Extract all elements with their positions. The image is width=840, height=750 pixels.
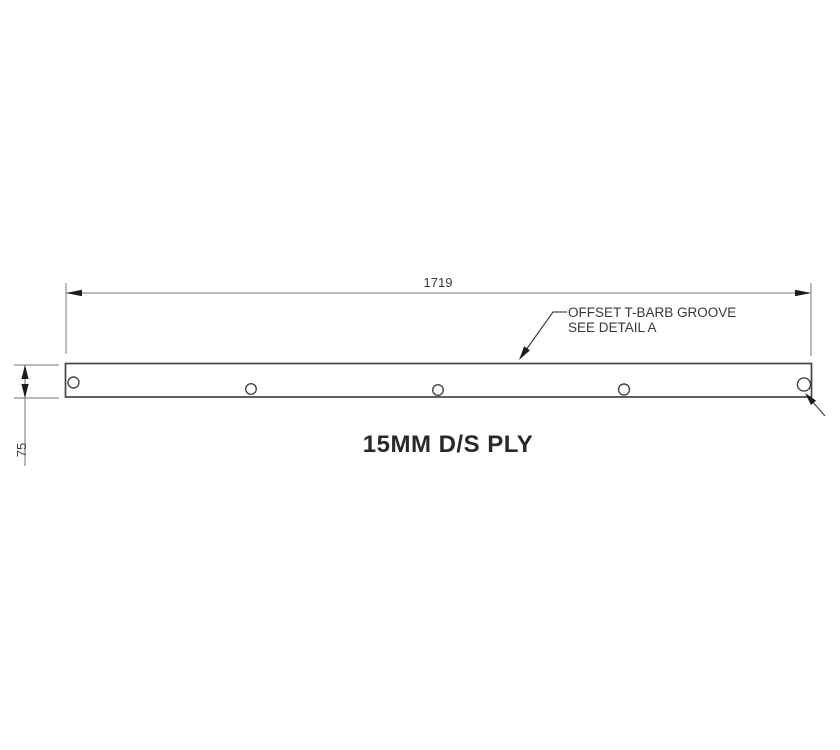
part-title: 15MM D/S PLY bbox=[363, 431, 534, 458]
hole-4 bbox=[619, 384, 630, 395]
length-dimension-label: 1719 bbox=[424, 275, 453, 290]
detail-leader bbox=[805, 393, 825, 416]
arrowhead-up-icon bbox=[21, 365, 28, 379]
arrowhead-right-icon bbox=[795, 290, 811, 297]
hole-2 bbox=[246, 384, 257, 395]
hole-3 bbox=[433, 385, 444, 396]
groove-note-line2: SEE DETAIL A bbox=[568, 320, 657, 335]
thickness-dimension: 75 bbox=[14, 365, 59, 466]
technical-drawing: 1719 75 OFFSET T-BARB GROOVE SEE DETAIL … bbox=[0, 0, 840, 750]
arrowhead-down-icon bbox=[21, 384, 28, 398]
arrowhead-left-icon bbox=[66, 290, 82, 297]
leader-arrowhead-icon bbox=[519, 346, 530, 360]
thickness-dimension-label: 75 bbox=[14, 443, 29, 457]
groove-note: OFFSET T-BARB GROOVE SEE DETAIL A bbox=[519, 305, 736, 360]
hole-5 bbox=[797, 378, 810, 391]
drawing-sheet: 1719 75 OFFSET T-BARB GROOVE SEE DETAIL … bbox=[0, 0, 840, 750]
groove-note-line1: OFFSET T-BARB GROOVE bbox=[568, 305, 736, 320]
hole-1 bbox=[68, 377, 79, 388]
plywood-strip bbox=[66, 364, 812, 398]
